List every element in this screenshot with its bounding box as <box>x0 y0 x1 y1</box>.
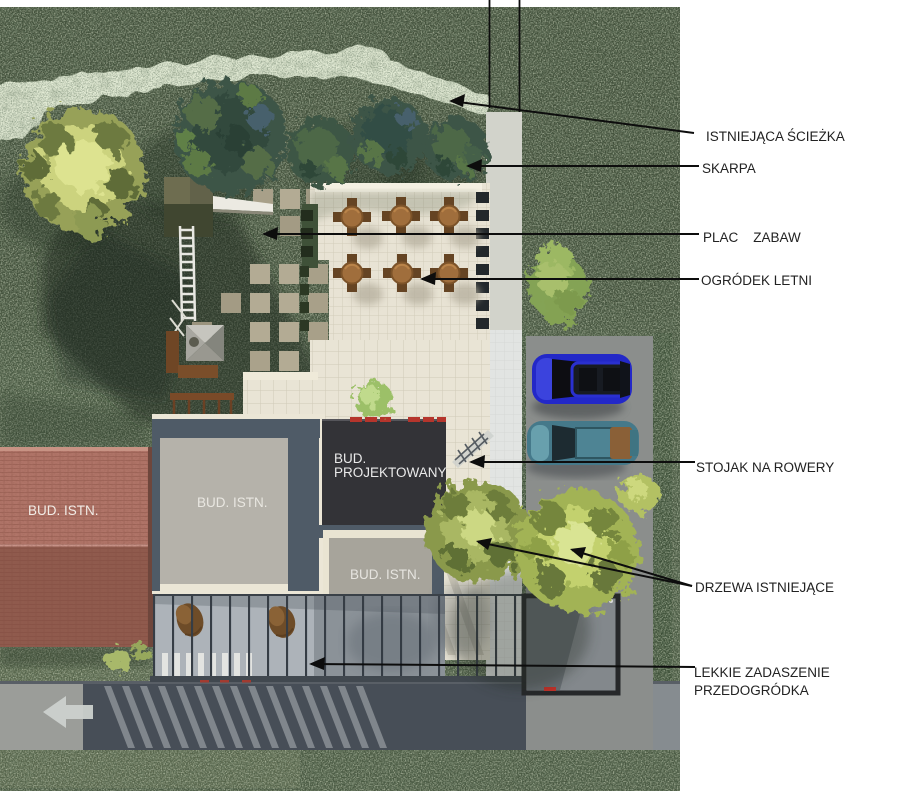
svg-text:ISTNIEJĄCA ŚCIEŻKA: ISTNIEJĄCA ŚCIEŻKA <box>706 129 845 144</box>
svg-text:BUD. ISTN.: BUD. ISTN. <box>350 567 421 582</box>
svg-text:LEKKIE ZADASZENIE: LEKKIE ZADASZENIE <box>694 665 830 680</box>
svg-text:DRZEWA ISTNIEJĄCE: DRZEWA ISTNIEJĄCE <box>695 580 834 595</box>
svg-text:PRZEDOGRÓDKA: PRZEDOGRÓDKA <box>694 683 809 698</box>
svg-text:BUD.: BUD. <box>334 451 366 466</box>
svg-text:PLAC ZABAW: PLAC ZABAW <box>703 230 801 245</box>
svg-text:PROJEKTOWANY: PROJEKTOWANY <box>334 465 447 480</box>
svg-text:STOJAK NA ROWERY: STOJAK NA ROWERY <box>696 460 834 475</box>
svg-text:SKARPA: SKARPA <box>702 161 756 176</box>
svg-text:BUD. ISTN.: BUD. ISTN. <box>28 503 99 518</box>
svg-text:BUD. ISTN.: BUD. ISTN. <box>197 495 268 510</box>
svg-text:OGRÓDEK LETNI: OGRÓDEK LETNI <box>701 273 812 288</box>
